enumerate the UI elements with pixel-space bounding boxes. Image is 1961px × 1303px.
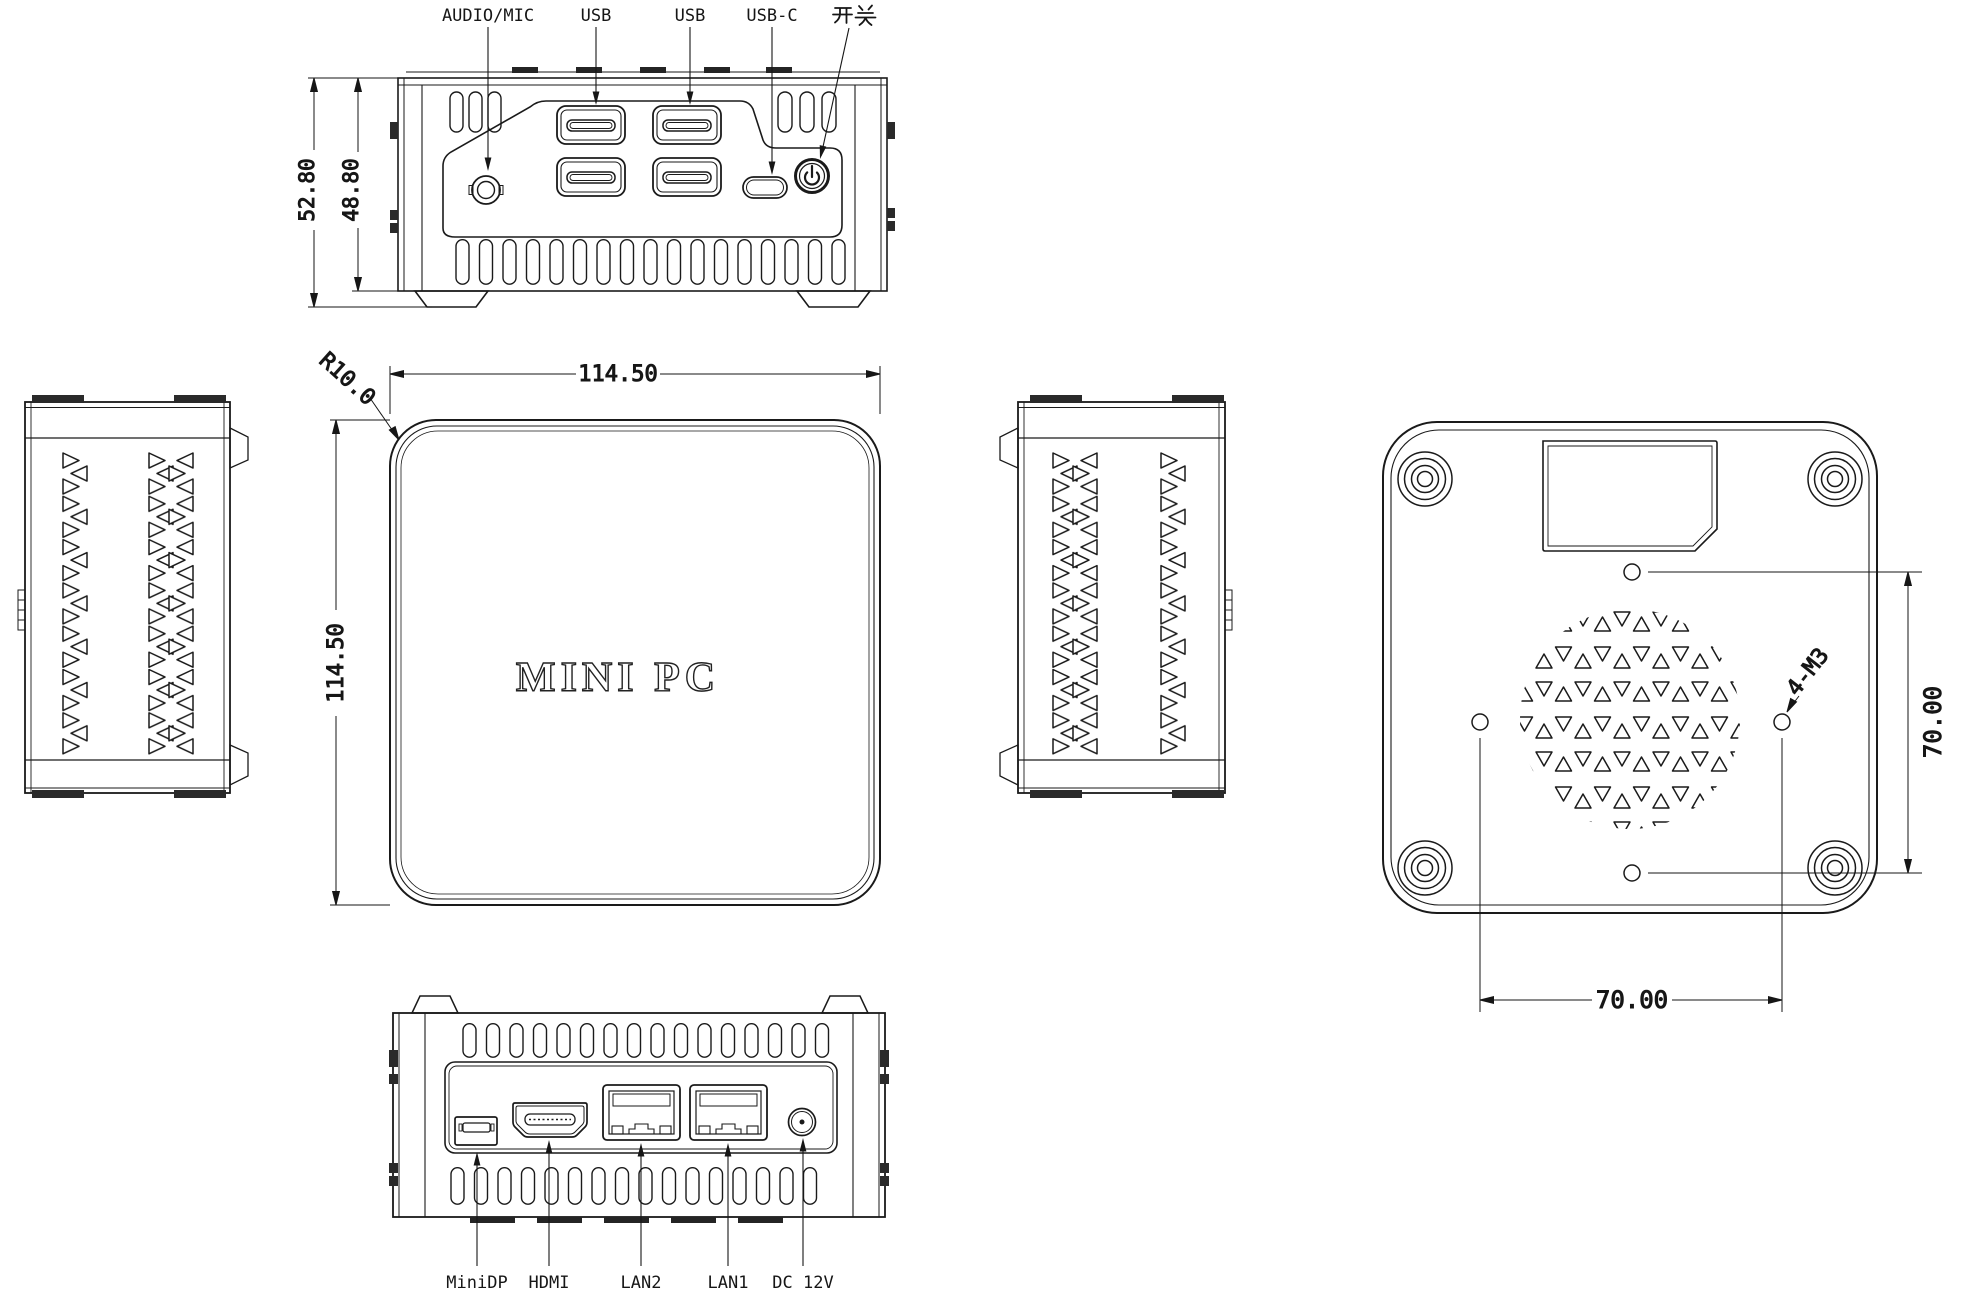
dim-text-hole-spacing-h: 70.00 bbox=[1596, 986, 1668, 1014]
rear-callouts: MiniDP HDMI LAN2 LAN1 DC 12V bbox=[446, 1138, 833, 1293]
front-callouts: AUDIO/MIC USB USB USB-C 开关 bbox=[442, 6, 876, 176]
side-view-left bbox=[18, 395, 248, 798]
bottom-fan-vents bbox=[1520, 609, 1740, 829]
side-right-notch bbox=[1225, 590, 1232, 630]
hdmi-port bbox=[513, 1103, 587, 1137]
label-usb-2: USB bbox=[675, 6, 706, 26]
dim-text-overall-height: 52.80 bbox=[295, 158, 319, 221]
dim-text-radius: R10.0 bbox=[314, 348, 380, 411]
label-audio-mic: AUDIO/MIC bbox=[442, 6, 534, 26]
top-dimensions: 114.50 114.50 R10.0 bbox=[314, 348, 880, 905]
usb-c-port bbox=[743, 177, 787, 198]
side-left-vents-col1 bbox=[60, 452, 90, 755]
side-right-vents-col1 bbox=[1052, 452, 1100, 755]
side-left-tab-top bbox=[230, 428, 248, 468]
front-vents-bottom bbox=[455, 239, 855, 285]
radius-callout: R10.0 bbox=[314, 348, 402, 442]
dim-text-screw-note: 4-M3 bbox=[1782, 644, 1834, 701]
top-view: MINI PC bbox=[390, 420, 880, 905]
side-right-outline bbox=[1018, 402, 1225, 793]
audio-jack bbox=[469, 176, 503, 204]
front-dimensions: 52.80 48.80 bbox=[295, 78, 432, 307]
mount-hole-right bbox=[1774, 714, 1790, 730]
label-usb-c: USB-C bbox=[746, 6, 797, 26]
dim-text-body-height: 48.80 bbox=[339, 158, 363, 221]
minidp-port bbox=[455, 1117, 497, 1145]
rear-vents-bottom bbox=[450, 1167, 826, 1205]
side-left-notch bbox=[18, 590, 25, 630]
bottom-foot-bl bbox=[1398, 841, 1452, 895]
label-lan2: LAN2 bbox=[621, 1273, 662, 1293]
product-engraving: MINI PC bbox=[516, 655, 720, 701]
front-vents-top-left bbox=[450, 92, 501, 132]
label-recess bbox=[1543, 441, 1717, 551]
lan2-port bbox=[603, 1085, 680, 1140]
front-view bbox=[390, 67, 895, 307]
rear-side-tabs bbox=[389, 1050, 889, 1186]
label-hdmi: HDMI bbox=[529, 1273, 570, 1293]
dim-text-top-depth: 114.50 bbox=[324, 623, 349, 702]
usb-port-2 bbox=[653, 106, 721, 144]
dim-text-top-width: 114.50 bbox=[578, 362, 657, 387]
power-button bbox=[796, 160, 829, 193]
mount-hole-bottom bbox=[1624, 865, 1640, 881]
dim-48-80: 48.80 bbox=[339, 78, 363, 291]
front-leader-lines bbox=[488, 27, 849, 173]
side-view-right bbox=[1000, 395, 1232, 798]
rear-view bbox=[389, 996, 889, 1223]
side-right-vents-col2 bbox=[1158, 452, 1188, 755]
power-icon bbox=[802, 166, 822, 187]
front-foot-left bbox=[415, 291, 488, 307]
bottom-foot-tr bbox=[1808, 452, 1862, 506]
side-right-tab-top bbox=[1000, 428, 1018, 468]
usb-port-3 bbox=[557, 158, 625, 196]
bottom-foot-tl bbox=[1398, 452, 1452, 506]
rear-foot-left bbox=[412, 996, 458, 1013]
usb-port-1 bbox=[557, 106, 625, 144]
front-recess-outline bbox=[443, 101, 842, 237]
dim-text-hole-spacing-v: 70.00 bbox=[1919, 686, 1947, 758]
label-dc-12v: DC 12V bbox=[772, 1273, 833, 1293]
lan1-port bbox=[690, 1085, 767, 1140]
side-left-outline bbox=[25, 402, 230, 793]
rear-vents-top bbox=[462, 1023, 838, 1058]
front-foot-right bbox=[797, 291, 870, 307]
rear-foot-right bbox=[822, 996, 868, 1013]
label-lan1: LAN1 bbox=[708, 1273, 749, 1293]
label-usb-1: USB bbox=[581, 6, 612, 26]
dc-jack bbox=[789, 1109, 816, 1136]
mount-hole-left bbox=[1472, 714, 1488, 730]
side-left-vents-col2 bbox=[148, 452, 196, 755]
bottom-foot-br bbox=[1808, 841, 1862, 895]
rear-bottom-strips bbox=[470, 1217, 783, 1223]
screw-note-callout: 4-M3 bbox=[1782, 644, 1834, 714]
side-right-tab-bottom bbox=[1000, 745, 1018, 785]
dim-52-80: 52.80 bbox=[295, 78, 319, 307]
usb-port-4 bbox=[653, 158, 721, 196]
label-minidp: MiniDP bbox=[446, 1273, 507, 1293]
drawing-sheet: AUDIO/MIC USB USB USB-C 开关 5 bbox=[0, 0, 1961, 1303]
mount-hole-top bbox=[1624, 564, 1640, 580]
side-left-tab-bottom bbox=[230, 745, 248, 785]
mini-pc-technical-drawing: AUDIO/MIC USB USB USB-C 开关 5 bbox=[0, 0, 1961, 1303]
